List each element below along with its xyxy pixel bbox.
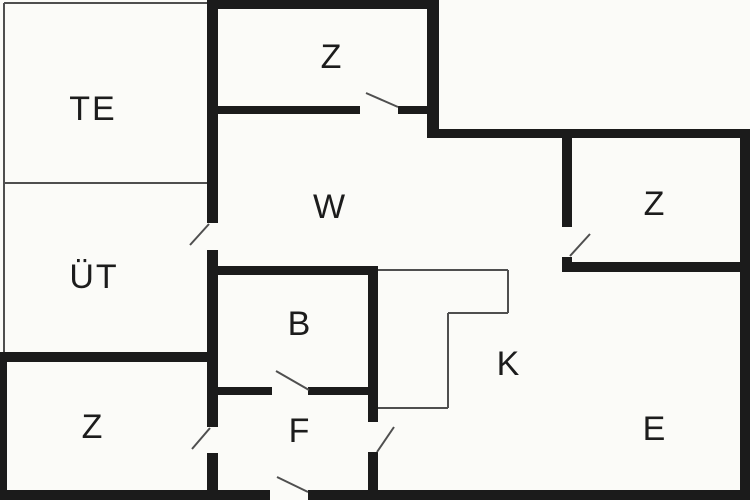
wall-bf-right-upper: [368, 266, 378, 422]
wall-notch-vertical: [427, 0, 439, 138]
wall-outer-right: [740, 129, 750, 500]
swing-door-z-bottom-left: [192, 428, 210, 449]
wall-spine-middle: [207, 250, 218, 427]
wall-z-top-bottom-left: [218, 106, 360, 114]
wall-z-right-bottom: [562, 262, 750, 272]
wall-outer-bottom-left: [0, 490, 270, 500]
swing-door-z-right: [570, 234, 590, 256]
room-label-z-top: Z: [321, 38, 344, 77]
room-label-b: B: [288, 305, 313, 344]
wall-bf-right-lower: [368, 452, 378, 490]
wall-outer-bottom-right: [308, 490, 750, 500]
swing-door-b: [276, 371, 309, 390]
room-label-te: TE: [69, 90, 116, 129]
floorplan: TE ÜT Z W Z B K F Z E: [0, 0, 750, 500]
wall-outer-top: [207, 0, 438, 9]
swing-door-ut: [190, 224, 209, 245]
room-label-z-right: Z: [644, 185, 667, 224]
wall-z-top-bottom-right: [398, 106, 427, 114]
floorplan-drawing: [0, 0, 750, 500]
wall-spine-upper: [207, 0, 218, 223]
room-label-e: E: [643, 410, 668, 449]
room-label-w: W: [313, 188, 347, 227]
swing-door-z-top: [366, 93, 398, 107]
swing-door-f-k: [377, 427, 394, 452]
wall-spine-lower: [207, 453, 218, 490]
wall-z-right-left-upper: [562, 138, 572, 227]
wall-b-top: [218, 266, 378, 275]
room-label-ut: ÜT: [69, 258, 118, 297]
swing-door-entrance: [277, 477, 308, 492]
wall-bf-divider-right: [308, 387, 368, 395]
room-label-z-bottom-left: Z: [82, 408, 105, 447]
room-label-f: F: [289, 412, 312, 451]
wall-outer-left-lower: [0, 352, 7, 500]
wall-bf-divider-left: [218, 387, 272, 395]
room-label-k: K: [497, 345, 522, 384]
wall-outer-upper-right: [427, 129, 750, 138]
wall-ut-z-divider: [0, 352, 218, 362]
